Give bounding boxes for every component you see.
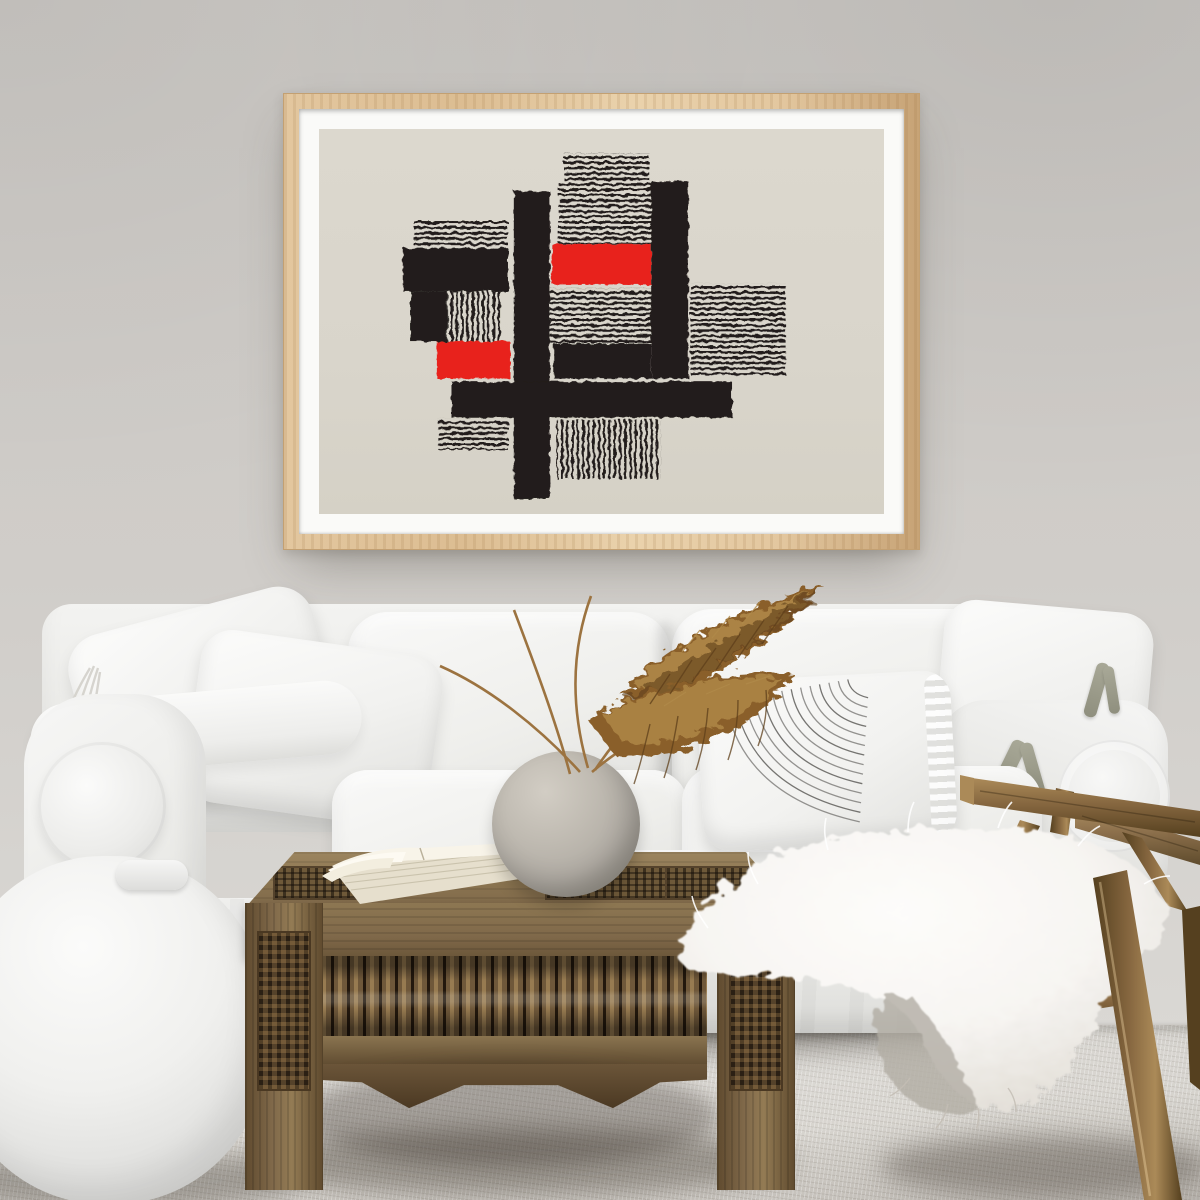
poster-white-border bbox=[299, 109, 904, 534]
poster-paper bbox=[319, 129, 884, 514]
art-red-block bbox=[437, 342, 510, 379]
art-hlines-block bbox=[413, 219, 507, 248]
pouf-handle bbox=[116, 860, 188, 890]
art-red-block bbox=[552, 244, 651, 284]
art-block-group bbox=[403, 153, 786, 499]
art-hlines-block bbox=[438, 419, 508, 450]
art-hlines-block bbox=[690, 283, 785, 374]
art-black-block bbox=[651, 181, 688, 379]
art-hlines-block bbox=[550, 288, 652, 343]
abstract-lino-print bbox=[319, 129, 884, 514]
table-leg-carving bbox=[257, 931, 311, 1091]
art-vlines-block bbox=[447, 291, 501, 341]
art-vlines-block bbox=[557, 420, 661, 479]
art-black-block bbox=[403, 248, 508, 291]
living-room-scene bbox=[0, 0, 1200, 1200]
art-hlines-block bbox=[559, 181, 653, 244]
chair-front-leg-layer bbox=[850, 610, 1200, 1200]
dried-pampas-grass bbox=[420, 556, 850, 816]
sofa-left-arm-scroll bbox=[38, 742, 166, 870]
art-black-block bbox=[514, 191, 550, 499]
art-black-block bbox=[554, 344, 651, 379]
table-leg-left bbox=[245, 903, 323, 1190]
framed-abstract-poster bbox=[283, 93, 920, 550]
art-hlines-block bbox=[564, 153, 650, 181]
art-black-block bbox=[451, 382, 732, 418]
art-black-block bbox=[411, 291, 447, 341]
